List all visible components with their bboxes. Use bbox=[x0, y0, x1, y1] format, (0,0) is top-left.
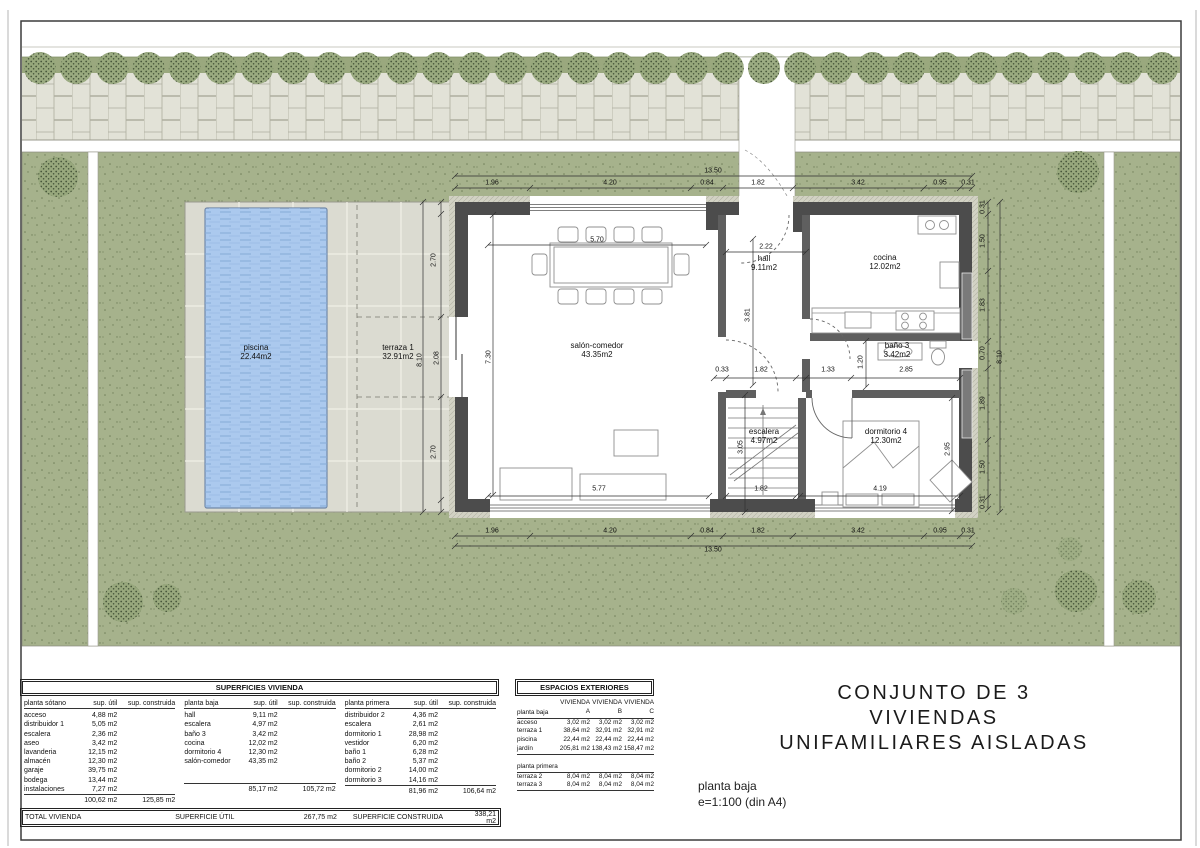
room-area: 4,36 m2 bbox=[392, 711, 438, 720]
tree-icon bbox=[205, 52, 237, 84]
col-sup-construida: sup. construida bbox=[278, 699, 336, 708]
room-name: acceso bbox=[24, 711, 71, 720]
table-row: acceso3,02 m23,02 m23,02 m2 bbox=[517, 719, 654, 728]
tree-icon bbox=[103, 582, 143, 622]
dim-label: 2.70 bbox=[431, 253, 438, 267]
table-row: baño 33,42 m2 bbox=[184, 730, 335, 739]
group-total-row: 85,17 m2105,72 m2 bbox=[184, 783, 335, 795]
dim-label: 4.20 bbox=[603, 528, 617, 535]
group-floor-name: planta baja bbox=[184, 699, 231, 708]
room-name: cocina bbox=[184, 739, 231, 748]
room-label-line: 12.30m2 bbox=[865, 436, 907, 445]
table-row: dormitorio 412,30 m2 bbox=[184, 748, 335, 757]
room-name: escalera bbox=[184, 720, 231, 729]
room-area-construida bbox=[117, 739, 175, 748]
tree-icon bbox=[153, 584, 181, 612]
spacer bbox=[590, 763, 622, 772]
room-area: 14,16 m2 bbox=[392, 776, 438, 785]
caption-floor: planta baja bbox=[698, 778, 786, 794]
area-vivienda-c: 8,04 m2 bbox=[622, 781, 654, 790]
room-area-construida bbox=[117, 720, 175, 729]
spacer bbox=[184, 785, 231, 795]
kitchen-sink bbox=[845, 312, 871, 328]
room-name: baño 1 bbox=[345, 748, 392, 757]
dim-label: 1.82 bbox=[754, 367, 768, 374]
room-label-line: baño 3 bbox=[884, 341, 911, 350]
exteriores-section-row: planta primera bbox=[517, 763, 654, 773]
tree-icon bbox=[965, 52, 997, 84]
spacer bbox=[559, 709, 590, 718]
room-area-construida bbox=[438, 766, 496, 775]
room-area-construida bbox=[278, 730, 336, 739]
room-label-line: hall bbox=[751, 254, 777, 263]
col-sup-util: sup. útil bbox=[392, 699, 438, 708]
total-vivienda-bar: TOTAL VIVIENDA SUPERFICIE ÚTIL 267,75 m2… bbox=[22, 810, 499, 825]
exteriores-table: VIVIENDA AVIVIENDA BVIVIENDA Cplanta baj… bbox=[517, 699, 654, 791]
dim-label: 2.22 bbox=[759, 244, 773, 251]
tree-icon bbox=[1110, 52, 1142, 84]
space-name: terraza 3 bbox=[517, 781, 559, 790]
tree-icon bbox=[350, 52, 382, 84]
table-row: distribuidor 24,36 m2 bbox=[345, 711, 496, 720]
tree-icon bbox=[386, 52, 418, 84]
dim-label: 3.42 bbox=[851, 180, 865, 187]
room-name: hall bbox=[184, 711, 231, 720]
tree-icon bbox=[639, 52, 671, 84]
area-vivienda-c: 32,91 m2 bbox=[622, 727, 654, 736]
room-area: 43,35 m2 bbox=[232, 757, 278, 766]
section-name: planta primera bbox=[517, 763, 559, 772]
room-label: escalera4.97m2 bbox=[749, 427, 779, 445]
group-header: planta primerasup. útilsup. construida bbox=[345, 699, 496, 709]
total-construida: 106,64 m2 bbox=[438, 787, 496, 796]
room-area: 13,44 m2 bbox=[71, 776, 117, 785]
room-area-construida bbox=[117, 711, 175, 720]
coffee-table bbox=[614, 430, 658, 456]
room-label-line: dormitorio 4 bbox=[865, 427, 907, 436]
room-label: baño 33.42m2 bbox=[884, 341, 911, 359]
table-row: jardín205,81 m2138,43 m2158,47 m2 bbox=[517, 745, 654, 755]
tree-icon bbox=[314, 52, 346, 84]
tree-icon bbox=[133, 52, 165, 84]
tree-icon bbox=[241, 52, 273, 84]
area-vivienda-b: 8,04 m2 bbox=[590, 773, 622, 782]
table-row: terraza 138,64 m232,91 m232,91 m2 bbox=[517, 727, 654, 736]
table-row: escalera2,36 m2 bbox=[24, 730, 175, 739]
tree-icon bbox=[712, 52, 744, 84]
dim-label: 1.50 bbox=[980, 234, 987, 248]
tree-icon bbox=[96, 52, 128, 84]
col-sup-util: sup. útil bbox=[232, 699, 278, 708]
spacer bbox=[590, 709, 622, 718]
dim-label: 13.50 bbox=[704, 168, 722, 175]
dim-label: 8.10 bbox=[997, 350, 1004, 364]
table-row: baño 25,37 m2 bbox=[345, 757, 496, 766]
room-name: aseo bbox=[24, 739, 71, 748]
spacer bbox=[24, 796, 71, 805]
room-label-line: escalera bbox=[749, 427, 779, 436]
room-label-line: terraza 1 bbox=[382, 343, 414, 352]
space-name: terraza 2 bbox=[517, 773, 559, 782]
room-name: escalera bbox=[24, 730, 71, 739]
total-construida: 105,72 m2 bbox=[278, 785, 336, 795]
table-row: vestidor6,20 m2 bbox=[345, 739, 496, 748]
area-vivienda-a: 205,81 m2 bbox=[559, 745, 590, 754]
tree-icon bbox=[24, 52, 56, 84]
tree-icon bbox=[748, 52, 780, 84]
table-row: escalera4,97 m2 bbox=[184, 720, 335, 729]
dim-label: 1.89 bbox=[980, 396, 987, 410]
room-area-construida bbox=[117, 766, 175, 775]
tree-icon bbox=[1055, 570, 1097, 612]
table-row: acceso4,88 m2 bbox=[24, 711, 175, 720]
table-row: dormitorio 314,16 m2 bbox=[345, 776, 496, 785]
tree-icon bbox=[495, 52, 527, 84]
tree-icon bbox=[1146, 52, 1178, 84]
room-area-construida bbox=[438, 720, 496, 729]
superficies-group: planta bajasup. útilsup. construidahall9… bbox=[184, 699, 335, 795]
room-name: bodega bbox=[24, 776, 71, 785]
room-label-line: salón-comedor bbox=[571, 341, 624, 350]
dim-label: 0.31 bbox=[961, 528, 975, 535]
dim-label: 2.08 bbox=[434, 351, 441, 365]
total-util: 100,62 m2 bbox=[71, 796, 117, 805]
spacer bbox=[622, 709, 654, 718]
table-row: garaje39,75 m2 bbox=[24, 766, 175, 775]
dim-label: 1.82 bbox=[754, 486, 768, 493]
room-area-construida bbox=[438, 757, 496, 766]
dim-label: 1.82 bbox=[751, 528, 765, 535]
section-gap bbox=[517, 755, 654, 763]
room-area-construida bbox=[117, 785, 175, 794]
space-name: acceso bbox=[517, 719, 559, 728]
superficie-util-value: 267,75 m2 bbox=[278, 814, 337, 821]
tree-icon bbox=[277, 52, 309, 84]
room-name: dormitorio 4 bbox=[184, 748, 231, 757]
space-name: piscina bbox=[517, 736, 559, 745]
superficie-construida-value: 338,21 m2 bbox=[475, 811, 496, 825]
exteriores-header-row: VIVIENDA AVIVIENDA BVIVIENDA C bbox=[517, 699, 654, 708]
room-name: baño 3 bbox=[184, 730, 231, 739]
area-vivienda-b: 32,91 m2 bbox=[590, 727, 622, 736]
dim-label: 7.30 bbox=[486, 350, 493, 364]
entry-opening bbox=[739, 196, 793, 215]
toilet bbox=[932, 349, 945, 365]
area-vivienda-a: 8,04 m2 bbox=[559, 781, 590, 790]
spacer bbox=[345, 787, 392, 796]
room-area-construida bbox=[117, 748, 175, 757]
room-label-line: 9.11m2 bbox=[751, 263, 777, 272]
table-row: salón-comedor43,35 m2 bbox=[184, 757, 335, 766]
tree-icon bbox=[1058, 537, 1082, 561]
dim-label: 0.31 bbox=[980, 495, 987, 509]
area-vivienda-c: 8,04 m2 bbox=[622, 773, 654, 782]
room-name: escalera bbox=[345, 720, 392, 729]
table-row: piscina22,44 m222,44 m222,44 m2 bbox=[517, 736, 654, 745]
room-area: 12,30 m2 bbox=[71, 757, 117, 766]
bedside-table bbox=[822, 492, 838, 505]
room-area-construida bbox=[438, 711, 496, 720]
group-header: planta sótanosup. útilsup. construida bbox=[24, 699, 175, 709]
right-wall-gap bbox=[958, 341, 978, 368]
group-floor-name: planta primera bbox=[345, 699, 392, 708]
dim-label: 4.20 bbox=[603, 180, 617, 187]
project-title: CONJUNTO DE 3 VIVIENDAS UNIFAMILIARES AI… bbox=[779, 681, 1089, 756]
room-area-construida bbox=[438, 739, 496, 748]
group-total-row: 81,96 m2106,64 m2 bbox=[345, 785, 496, 796]
room-name: distribuidor 1 bbox=[24, 720, 71, 729]
dim-label: 0.95 bbox=[933, 180, 947, 187]
garden-path-right bbox=[1104, 152, 1114, 646]
superficie-construida-label: SUPERFICIE CONSTRUIDA bbox=[353, 814, 475, 821]
space-name: terraza 1 bbox=[517, 727, 559, 736]
dim-label: 1.96 bbox=[485, 528, 499, 535]
table-row: terraza 38,04 m28,04 m28,04 m2 bbox=[517, 781, 654, 791]
area-vivienda-b: 8,04 m2 bbox=[590, 781, 622, 790]
dim-label: 3.05 bbox=[738, 440, 745, 454]
room-name: dormitorio 2 bbox=[345, 766, 392, 775]
room-name: instalaciones bbox=[24, 785, 71, 794]
dim-label: 1.20 bbox=[858, 355, 865, 369]
tree-icon bbox=[820, 52, 852, 84]
superficie-util-label: SUPERFICIE ÚTIL bbox=[175, 814, 278, 821]
table-row: bodega13,44 m2 bbox=[24, 776, 175, 785]
dormitorio-window bbox=[962, 370, 972, 438]
room-area-construida bbox=[278, 711, 336, 720]
total-label: TOTAL VIVIENDA bbox=[25, 814, 175, 821]
room-area: 6,28 m2 bbox=[392, 748, 438, 757]
room-label-line: 32.91m2 bbox=[382, 352, 414, 361]
table-row: baño 16,28 m2 bbox=[345, 748, 496, 757]
total-util: 85,17 m2 bbox=[232, 785, 278, 795]
exteriores-table-title: ESPACIOS EXTERIORES bbox=[517, 681, 652, 694]
room-label: salón-comedor43.35m2 bbox=[571, 341, 624, 359]
room-area: 3,42 m2 bbox=[71, 739, 117, 748]
room-area: 12,02 m2 bbox=[232, 739, 278, 748]
spacer bbox=[622, 763, 654, 772]
dim-label: 0.84 bbox=[700, 528, 714, 535]
room-area: 39,75 m2 bbox=[71, 766, 117, 775]
area-vivienda-a: 8,04 m2 bbox=[559, 773, 590, 782]
kitchen-cabinet bbox=[940, 262, 959, 288]
room-area: 5,37 m2 bbox=[392, 757, 438, 766]
room-name: distribuidor 2 bbox=[345, 711, 392, 720]
room-name: vestidor bbox=[345, 739, 392, 748]
superficies-group: planta sótanosup. útilsup. construidaacc… bbox=[24, 699, 175, 795]
room-name: almacén bbox=[24, 757, 71, 766]
room-area-construida bbox=[117, 757, 175, 766]
area-vivienda-b: 3,02 m2 bbox=[590, 719, 622, 728]
room-area-construida bbox=[278, 757, 336, 766]
room-area: 14,00 m2 bbox=[392, 766, 438, 775]
room-label-line: 43.35m2 bbox=[571, 350, 624, 359]
dim-label: 0.31 bbox=[961, 180, 975, 187]
group-header: planta bajasup. útilsup. construida bbox=[184, 699, 335, 709]
tree-icon bbox=[458, 52, 490, 84]
room-area-construida bbox=[438, 730, 496, 739]
room-area-construida bbox=[117, 776, 175, 785]
cocina-window bbox=[962, 273, 972, 339]
dim-label: 0.95 bbox=[933, 528, 947, 535]
tree-icon bbox=[603, 52, 635, 84]
exteriores-section-row: planta baja bbox=[517, 709, 654, 719]
tree-icon bbox=[1001, 52, 1033, 84]
tree-icon bbox=[422, 52, 454, 84]
room-area: 4,97 m2 bbox=[232, 720, 278, 729]
room-label: piscina22.44m2 bbox=[240, 343, 271, 361]
room-name: dormitorio 1 bbox=[345, 730, 392, 739]
room-area: 9,11 m2 bbox=[232, 711, 278, 720]
tree-icon bbox=[1038, 52, 1070, 84]
room-name: garaje bbox=[24, 766, 71, 775]
tree-icon bbox=[1057, 151, 1099, 193]
room-area: 3,42 m2 bbox=[232, 730, 278, 739]
tree-icon bbox=[1122, 580, 1156, 614]
dim-label: 2.70 bbox=[431, 445, 438, 459]
table-row: cocina12,02 m2 bbox=[184, 739, 335, 748]
sofa bbox=[500, 468, 572, 500]
room-name: lavanderia bbox=[24, 748, 71, 757]
room-name: dormitorio 3 bbox=[345, 776, 392, 785]
room-label: terraza 132.91m2 bbox=[382, 343, 414, 361]
dim-label: 2.85 bbox=[899, 367, 913, 374]
tree-icon bbox=[60, 52, 92, 84]
tree-icon bbox=[784, 52, 816, 84]
dim-label: 8.10 bbox=[417, 353, 424, 367]
area-vivienda-b: 138,43 m2 bbox=[590, 745, 622, 754]
table-row: hall9,11 m2 bbox=[184, 711, 335, 720]
table-row: escalera2,61 m2 bbox=[345, 720, 496, 729]
room-name: baño 2 bbox=[345, 757, 392, 766]
room-area: 7,27 m2 bbox=[71, 785, 117, 794]
table-row: almacén12,30 m2 bbox=[24, 757, 175, 766]
terrace-sliding-door bbox=[449, 317, 468, 397]
tree-icon bbox=[1001, 588, 1027, 614]
dim-label: 0.84 bbox=[700, 180, 714, 187]
col-sup-construida: sup. construida bbox=[117, 699, 175, 708]
project-title-line1: CONJUNTO DE 3 VIVIENDAS bbox=[779, 681, 1089, 731]
room-label-line: cocina bbox=[869, 253, 900, 262]
tree-icon bbox=[531, 52, 563, 84]
space-name: jardín bbox=[517, 745, 559, 754]
room-label-line: 4.97m2 bbox=[749, 436, 779, 445]
project-title-line2: UNIFAMILIARES AISLADAS bbox=[779, 731, 1089, 756]
dim-label: 1.50 bbox=[980, 460, 987, 474]
section-name: planta baja bbox=[517, 709, 559, 718]
area-vivienda-c: 3,02 m2 bbox=[622, 719, 654, 728]
area-vivienda-a: 38,64 m2 bbox=[559, 727, 590, 736]
tree-icon bbox=[893, 52, 925, 84]
spacer bbox=[559, 763, 590, 772]
room-label: cocina12.02m2 bbox=[869, 253, 900, 271]
sidewalk-paving bbox=[22, 73, 1180, 140]
area-vivienda-a: 22,44 m2 bbox=[559, 736, 590, 745]
dim-label: 1.96 bbox=[485, 180, 499, 187]
caption-scale: e=1:100 (din A4) bbox=[698, 794, 786, 810]
area-vivienda-c: 158,47 m2 bbox=[622, 745, 654, 754]
tree-icon bbox=[676, 52, 708, 84]
group-floor-name: planta sótano bbox=[24, 699, 71, 708]
toilet-tank bbox=[930, 341, 946, 348]
room-name: salón-comedor bbox=[184, 757, 231, 766]
dim-label: 0.33 bbox=[715, 367, 729, 374]
room-label-line: 22.44m2 bbox=[240, 352, 271, 361]
room-label-line: piscina bbox=[240, 343, 271, 352]
room-area-construida bbox=[278, 720, 336, 729]
dim-label: 0.31 bbox=[980, 200, 987, 214]
area-vivienda-c: 22,44 m2 bbox=[622, 736, 654, 745]
tree-icon bbox=[857, 52, 889, 84]
dim-label: 0.70 bbox=[980, 346, 987, 360]
table-row: aseo3,42 m2 bbox=[24, 739, 175, 748]
area-vivienda-b: 22,44 m2 bbox=[590, 736, 622, 745]
room-area: 4,88 m2 bbox=[71, 711, 117, 720]
group-total-row: 100,62 m2125,85 m2 bbox=[24, 794, 175, 805]
col-sup-util: sup. útil bbox=[71, 699, 117, 708]
superficies-table: planta sótanosup. útilsup. construidaacc… bbox=[24, 699, 496, 795]
terrace-deck bbox=[185, 202, 455, 512]
room-area: 2,61 m2 bbox=[392, 720, 438, 729]
room-label: dormitorio 412.30m2 bbox=[865, 427, 907, 445]
total-util: 81,96 m2 bbox=[392, 787, 438, 796]
kitchen-counter bbox=[812, 308, 960, 333]
room-label-line: 12.02m2 bbox=[869, 262, 900, 271]
garden-path-left bbox=[88, 152, 98, 646]
table-row: terraza 28,04 m28,04 m28,04 m2 bbox=[517, 773, 654, 782]
room-area-construida bbox=[117, 730, 175, 739]
table-row: dormitorio 128,98 m2 bbox=[345, 730, 496, 739]
dim-label: 3.81 bbox=[745, 308, 752, 322]
room-area-construida bbox=[278, 748, 336, 757]
area-vivienda-a: 3,02 m2 bbox=[559, 719, 590, 728]
room-area-construida bbox=[278, 739, 336, 748]
room-area: 12,30 m2 bbox=[232, 748, 278, 757]
dim-label: 2.95 bbox=[945, 442, 952, 456]
dim-label: 4.19 bbox=[873, 486, 887, 493]
tree-icon bbox=[1074, 52, 1106, 84]
dim-label: 1.33 bbox=[821, 367, 835, 374]
plan-caption: planta baja e=1:100 (din A4) bbox=[698, 778, 786, 810]
table-row: lavanderia12,15 m2 bbox=[24, 748, 175, 757]
room-area: 12,15 m2 bbox=[71, 748, 117, 757]
dim-label: 1.83 bbox=[980, 298, 987, 312]
dim-label: 1.82 bbox=[751, 180, 765, 187]
dim-label: 5.77 bbox=[592, 486, 606, 493]
room-area: 6,20 m2 bbox=[392, 739, 438, 748]
dim-label: 3.42 bbox=[851, 528, 865, 535]
room-area: 2,36 m2 bbox=[71, 730, 117, 739]
room-label: hall9.11m2 bbox=[751, 254, 777, 272]
dim-label: 13.50 bbox=[704, 547, 722, 554]
room-label-line: 3.42m2 bbox=[884, 350, 911, 359]
drawing-sheet: 13.501.964.200.841.823.420.950.315.702.2… bbox=[0, 0, 1200, 848]
tree-icon bbox=[929, 52, 961, 84]
tree-icon bbox=[38, 157, 78, 197]
table-row: distribuidor 15,05 m2 bbox=[24, 720, 175, 729]
total-construida: 125,85 m2 bbox=[117, 796, 175, 805]
table-row: dormitorio 214,00 m2 bbox=[345, 766, 496, 775]
kitchen-sink-2 bbox=[918, 216, 956, 234]
room-area: 5,05 m2 bbox=[71, 720, 117, 729]
superficies-table-title: SUPERFICIES VIVIENDA bbox=[22, 681, 497, 694]
tree-icon bbox=[567, 52, 599, 84]
col-sup-construida: sup. construida bbox=[438, 699, 496, 708]
tree-icon bbox=[169, 52, 201, 84]
table-row: instalaciones7,27 m2 bbox=[24, 785, 175, 794]
room-area-construida bbox=[438, 748, 496, 757]
room-area-construida bbox=[438, 776, 496, 785]
superficies-group: planta primerasup. útilsup. construidadi… bbox=[345, 699, 496, 795]
